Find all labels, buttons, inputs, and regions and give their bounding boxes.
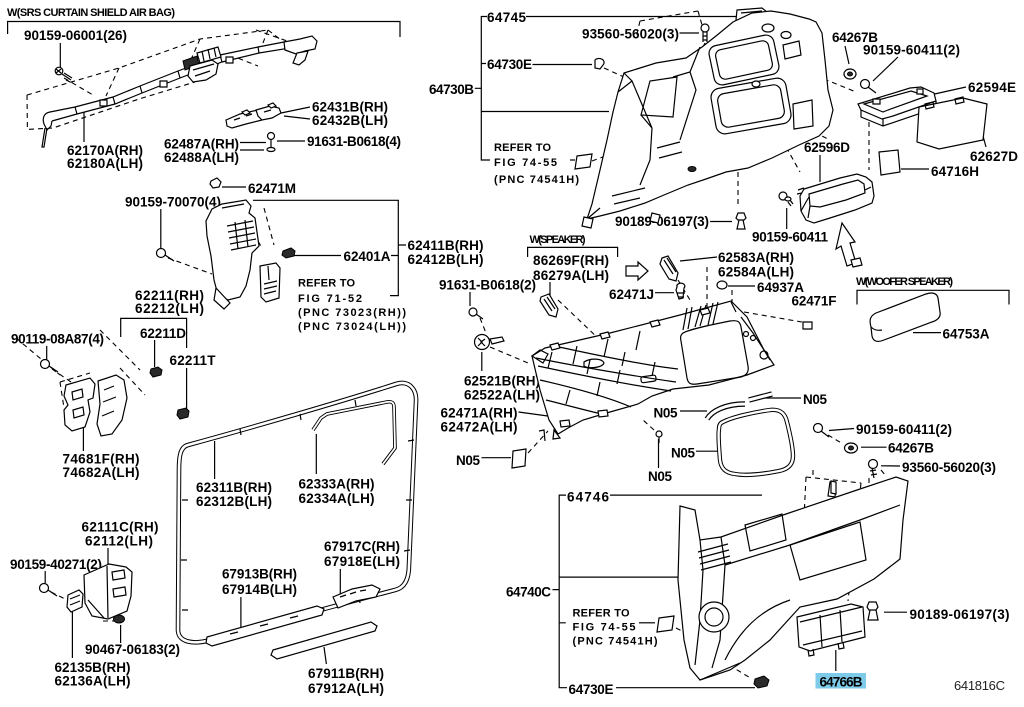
svg-text:64730E: 64730E <box>569 682 614 697</box>
svg-text:62312B(LH): 62312B(LH) <box>196 494 272 509</box>
svg-text:90159-70070(4): 90159-70070(4) <box>125 195 221 210</box>
svg-text:64753A: 64753A <box>943 327 990 342</box>
svg-text:90159-06001(26): 90159-06001(26) <box>24 28 127 43</box>
svg-text:67914B(LH): 67914B(LH) <box>222 582 297 597</box>
svg-text:62471A(RH): 62471A(RH) <box>441 406 518 421</box>
svg-text:62212(LH): 62212(LH) <box>135 301 204 316</box>
svg-text:64730B: 64730B <box>429 82 474 97</box>
svg-text:62111C(RH): 62111C(RH) <box>82 520 159 535</box>
svg-text:64730E: 64730E <box>487 57 532 72</box>
svg-text:62333A(RH): 62333A(RH) <box>299 477 375 492</box>
svg-text:W(SPEAKER): W(SPEAKER) <box>530 234 586 246</box>
svg-text:62211D: 62211D <box>140 326 186 341</box>
svg-text:93560-56020(3): 93560-56020(3) <box>902 460 996 475</box>
svg-text:62627D: 62627D <box>970 149 1018 164</box>
svg-text:64766B: 64766B <box>820 675 863 690</box>
svg-text:74682A(LH): 74682A(LH) <box>63 465 140 480</box>
svg-text:67918E(LH): 67918E(LH) <box>324 554 400 569</box>
svg-text:(PNC 74541H): (PNC 74541H) <box>573 636 658 648</box>
svg-text:86279A(LH): 86279A(LH) <box>533 268 609 283</box>
svg-text:64746: 64746 <box>567 490 609 505</box>
svg-text:62596D: 62596D <box>804 140 850 155</box>
svg-text:62211T: 62211T <box>170 353 217 368</box>
svg-text:62488A(LH): 62488A(LH) <box>164 150 239 165</box>
svg-text:62522A(LH): 62522A(LH) <box>464 388 540 403</box>
svg-text:86269F(RH): 86269F(RH) <box>533 253 609 268</box>
svg-text:REFER TO: REFER TO <box>298 278 355 290</box>
svg-text:W(SRS CURTAIN SHIELD AIR BAG): W(SRS CURTAIN SHIELD AIR BAG) <box>7 7 175 19</box>
svg-text:FIG 71-52: FIG 71-52 <box>298 293 362 305</box>
svg-text:62471J: 62471J <box>609 287 654 302</box>
svg-text:N05: N05 <box>648 469 672 484</box>
svg-text:62432B(LH): 62432B(LH) <box>312 113 388 128</box>
svg-text:90159-60411(2): 90159-60411(2) <box>863 43 960 58</box>
svg-text:90189-06197(3): 90189-06197(3) <box>615 214 709 229</box>
svg-text:N05: N05 <box>456 453 480 468</box>
svg-text:W(WOOFER SPEAKER): W(WOOFER SPEAKER) <box>856 276 953 288</box>
svg-text:62583A(RH): 62583A(RH) <box>718 250 794 265</box>
svg-text:62594E: 62594E <box>968 80 1016 95</box>
svg-text:62180A(LH): 62180A(LH) <box>67 156 143 171</box>
svg-text:67912A(LH): 67912A(LH) <box>308 681 384 696</box>
svg-text:62311B(RH): 62311B(RH) <box>196 480 272 495</box>
svg-text:62584A(LH): 62584A(LH) <box>718 265 794 280</box>
svg-text:62112(LH): 62112(LH) <box>85 534 153 549</box>
svg-text:91631-B0618(4): 91631-B0618(4) <box>307 134 401 149</box>
svg-text:90159-60411: 90159-60411 <box>752 230 828 245</box>
svg-text:62334A(LH): 62334A(LH) <box>299 491 375 506</box>
svg-text:90467-06183(2): 90467-06183(2) <box>85 642 180 657</box>
svg-text:62471F: 62471F <box>792 294 837 309</box>
svg-text:N05: N05 <box>654 406 678 421</box>
svg-text:REFER TO: REFER TO <box>573 608 630 620</box>
svg-text:90159-60411(2): 90159-60411(2) <box>856 422 952 437</box>
svg-text:FIG 74-55: FIG 74-55 <box>573 622 636 634</box>
svg-text:67913B(RH): 67913B(RH) <box>222 567 297 582</box>
svg-text:90189-06197(3): 90189-06197(3) <box>910 607 1010 622</box>
svg-text:62472A(LH): 62472A(LH) <box>441 420 518 435</box>
svg-text:67917C(RH): 67917C(RH) <box>324 539 400 554</box>
svg-text:90159-40271(2): 90159-40271(2) <box>10 557 102 572</box>
svg-text:64745: 64745 <box>487 10 526 25</box>
svg-text:64716H: 64716H <box>931 164 979 179</box>
svg-text:62411B(RH): 62411B(RH) <box>408 238 484 253</box>
svg-text:FIG 74-55: FIG 74-55 <box>494 157 557 169</box>
svg-text:REFER TO: REFER TO <box>494 142 551 154</box>
svg-text:62412B(LH): 62412B(LH) <box>408 252 484 267</box>
svg-text:90119-08A87(4): 90119-08A87(4) <box>11 332 104 347</box>
svg-text:67911B(RH): 67911B(RH) <box>308 666 384 681</box>
svg-text:93560-56020(3): 93560-56020(3) <box>582 27 679 42</box>
svg-text:62401A: 62401A <box>344 249 391 264</box>
svg-text:N05: N05 <box>671 446 695 461</box>
svg-text:62136A(LH): 62136A(LH) <box>55 674 131 689</box>
svg-text:N05: N05 <box>803 392 827 407</box>
svg-text:64267B: 64267B <box>888 441 934 456</box>
svg-text:64740C: 64740C <box>506 585 551 600</box>
svg-text:62471M: 62471M <box>248 181 296 196</box>
svg-text:91631-B0618(2): 91631-B0618(2) <box>439 278 536 293</box>
svg-text:(PNC 74541H): (PNC 74541H) <box>494 174 579 186</box>
svg-text:641816C: 641816C <box>954 678 1005 693</box>
svg-text:(PNC 73023(RH)): (PNC 73023(RH)) <box>298 307 406 319</box>
svg-text:(PNC 73024(LH)): (PNC 73024(LH)) <box>298 321 406 333</box>
svg-text:62521B(RH): 62521B(RH) <box>464 374 540 389</box>
